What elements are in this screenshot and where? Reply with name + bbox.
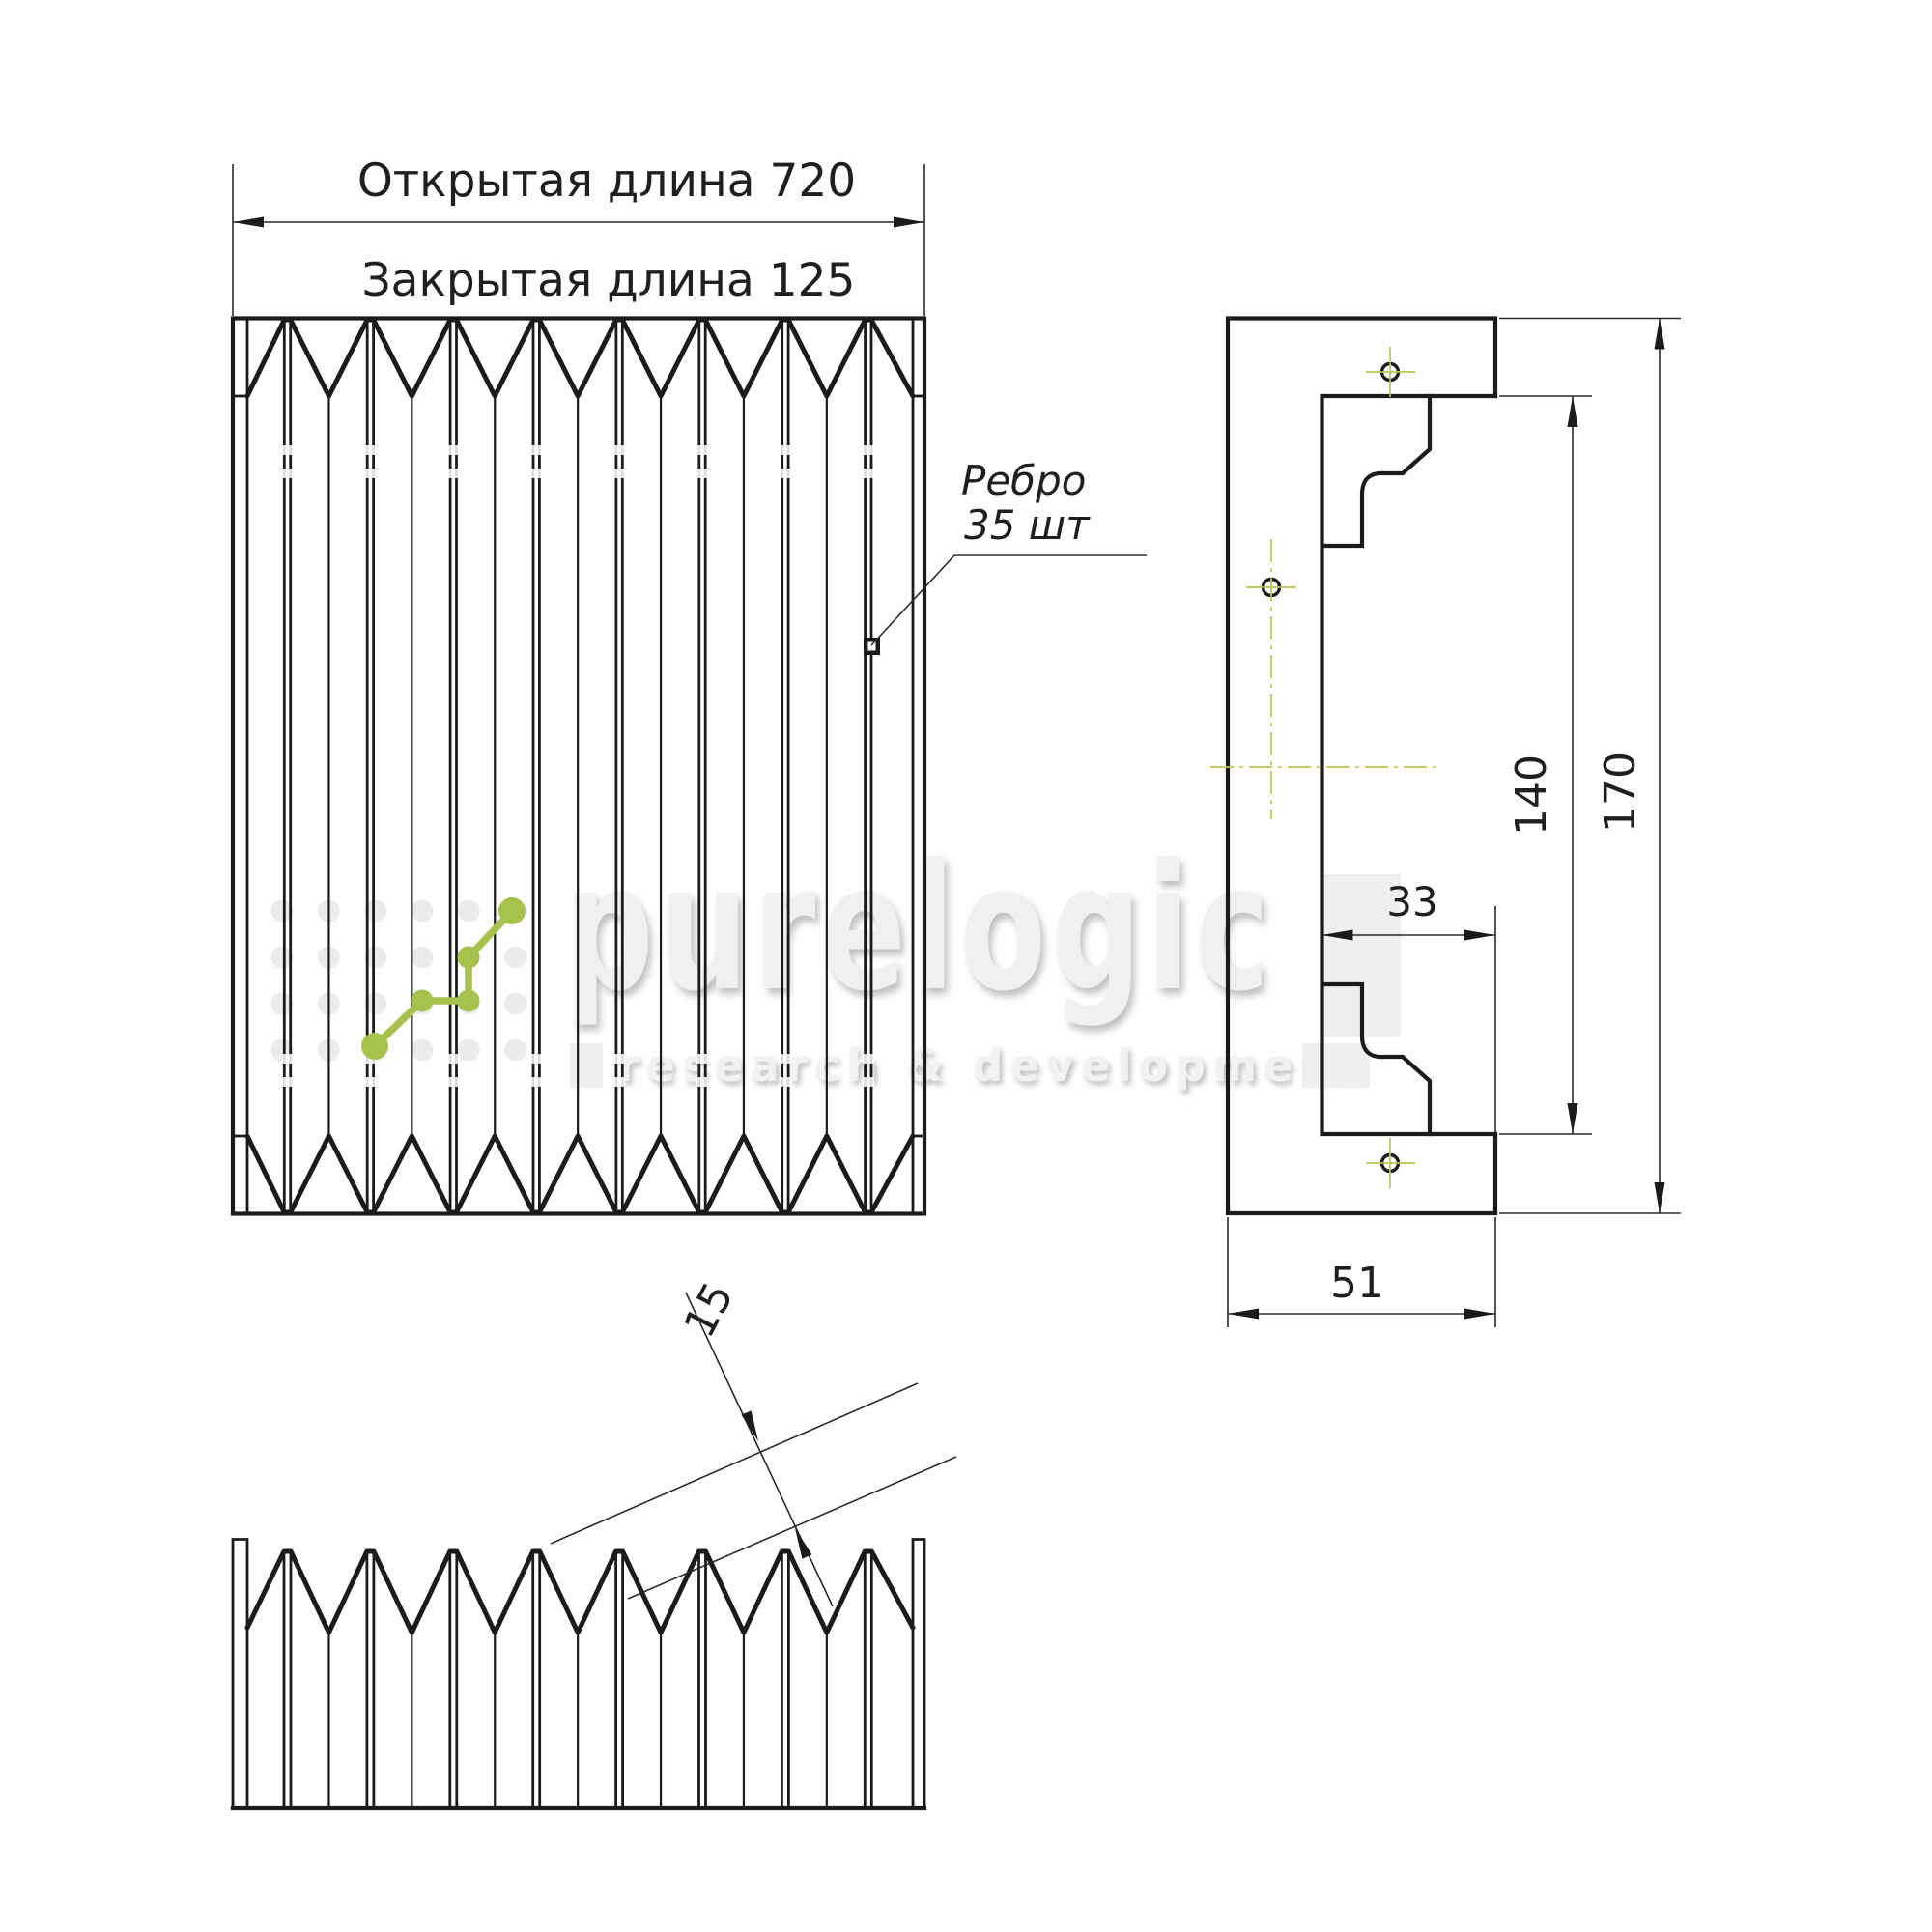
length-dimension: Открытая длина 720 Закрытая длина 125 [233,155,924,316]
outer-height-dimension-label: 170 [1596,752,1645,833]
pleat-pitch-dimension-label: 15 [675,1274,744,1345]
rib-note-line1: Ребро [961,457,1086,504]
technical-drawing: Открытая длина 720 Закрытая длина 125 Ре… [0,0,1932,1932]
watermark-dot-grid [271,874,1402,1088]
purelogic-logo-icon [361,897,526,1060]
open-length-label: Открытая длина 720 [357,155,856,208]
rib-note-line2: 35 шт [964,501,1091,549]
inner-height-dimension-label: 140 [1507,754,1556,836]
bellows-front-view [233,319,924,1214]
flange-depth-dimension-label: 33 [1386,878,1437,925]
drawing-canvas: purelogic research & development Открыта… [0,0,1932,1932]
closed-length-label: Закрытая длина 125 [362,254,856,307]
profile-width-dimension-label: 51 [1330,1259,1384,1308]
side-view-dimensions: 140 170 33 51 [1228,319,1681,1328]
rib-callout: Ребро 35 шт [864,457,1147,655]
